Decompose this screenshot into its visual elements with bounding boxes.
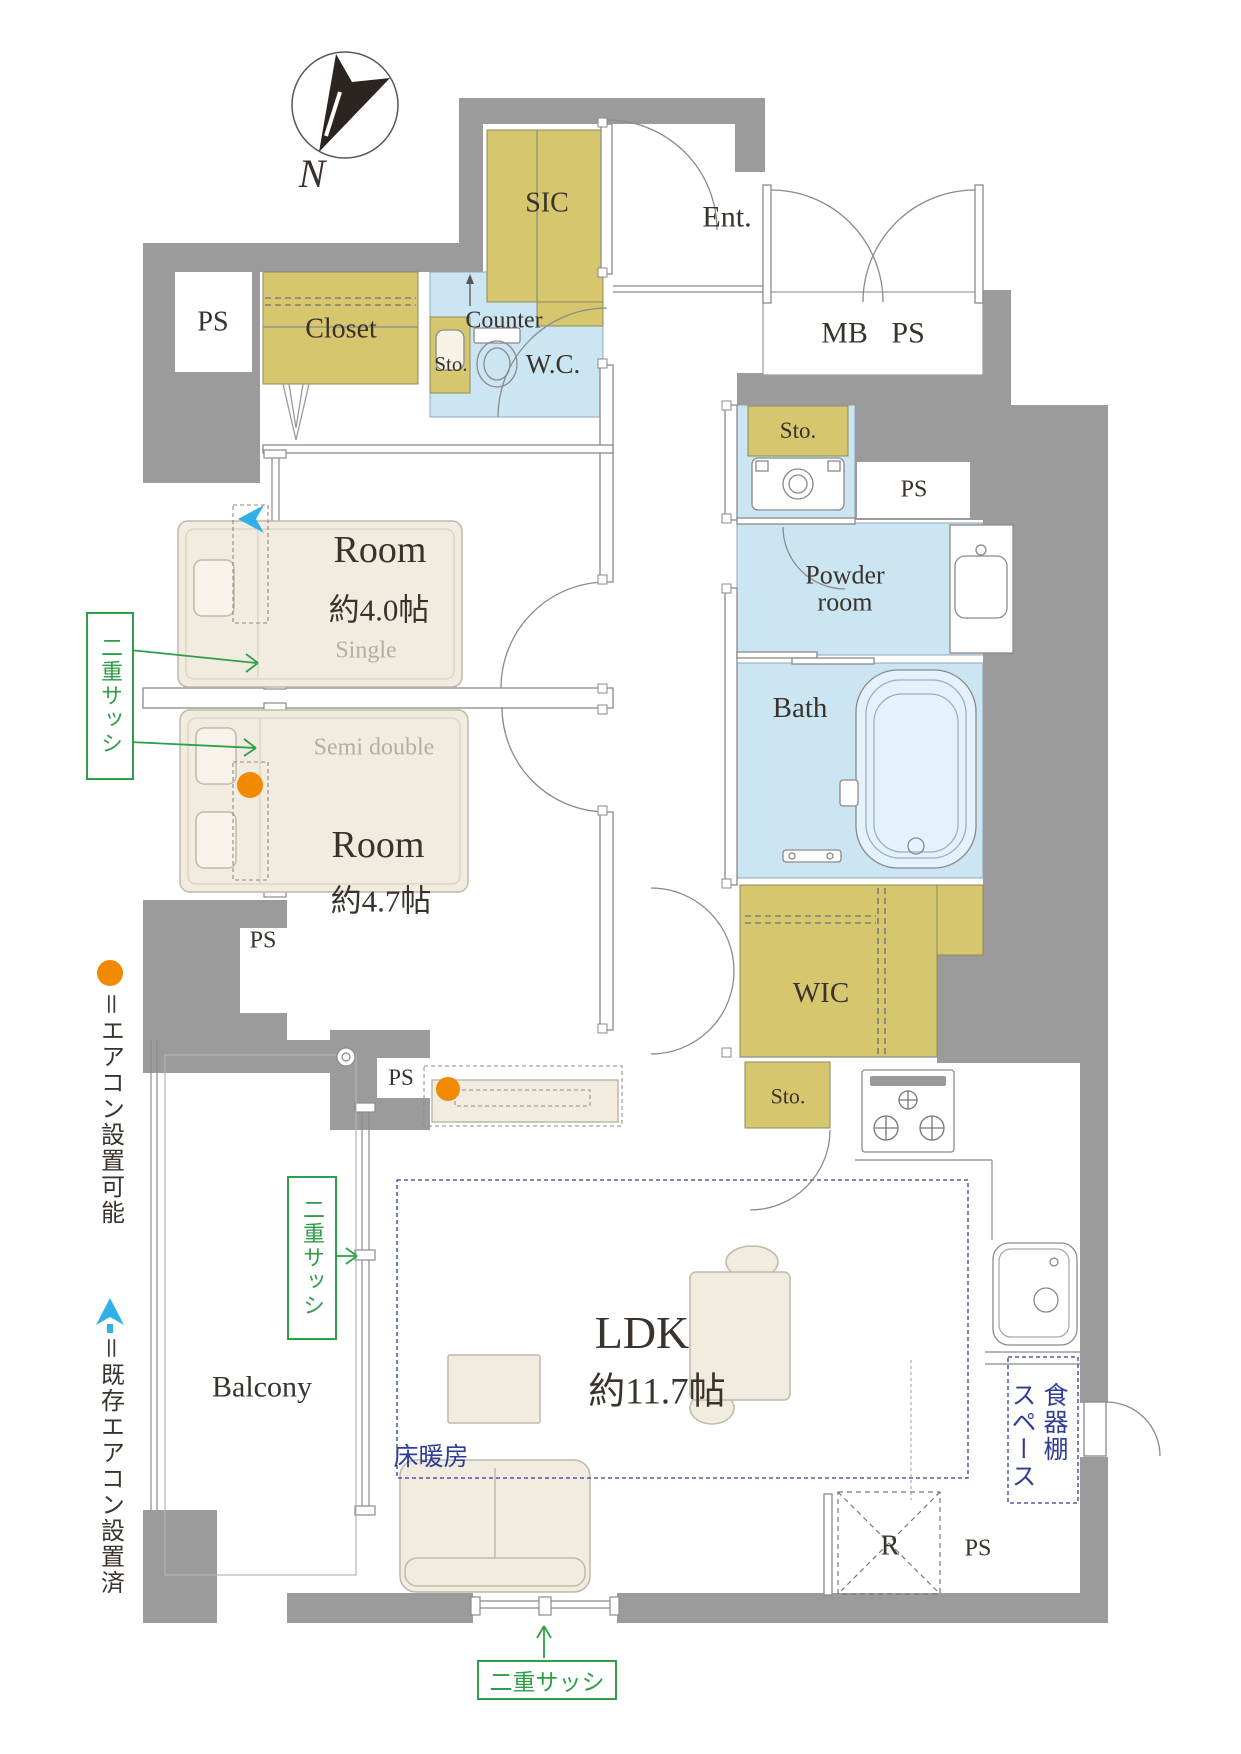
compass-label: N [299,153,326,195]
counter-label: Counter [465,308,542,333]
wic-zone [740,885,937,1057]
powder-room-label: Powder room [780,562,910,617]
fridge-label: R [881,1531,900,1560]
bath-faucet [840,780,858,806]
side-door [1106,1402,1160,1456]
ps-nw-label: PS [197,307,228,336]
room1-name: Room [334,531,427,571]
ldk-name: LDK [595,1309,690,1357]
wic-door-lower [651,971,734,1054]
ldk-size: 約11.7帖 [588,1374,725,1413]
ps-se-label: PS [965,1536,992,1561]
hanger-icon [283,384,309,440]
compass-icon [292,52,398,158]
floorplan-drawing [0,0,1241,1754]
vanity [950,525,1013,653]
kitchen-storage-door [750,1130,830,1210]
tv-board [432,1080,618,1122]
bath-label: Bath [773,693,828,723]
hall-door [607,120,717,230]
wic-door-upper [651,888,734,971]
double-sash-label-balcony: 二重サッシ [287,1176,337,1340]
hinge-blocks [598,118,731,1057]
wc-storage-label: Sto. [434,353,467,375]
legend-aircon-existing: ＝既存エアコン設置済 [93,1336,128,1596]
room2-bed-type: Semi double [314,735,435,760]
double-sash-label-left: 二重サッシ [86,612,134,780]
coffee-table [448,1355,540,1423]
wic-label: WIC [793,978,849,1008]
aircon-possible-icon [237,772,263,798]
room1-door [501,582,607,688]
cupboard-space-label: スペース [1003,1382,1039,1490]
closet-label: Closet [305,314,377,343]
aircon-possible-icon [97,960,123,986]
kitchen-storage-label: Sto. [771,1084,806,1107]
legend-aircon-possible: ＝エアコン設置可能 [93,992,128,1226]
ps-laundry-label: PS [901,477,928,502]
double-sash-label-bottom: 二重サッシ [477,1660,617,1700]
room2-door [502,707,607,812]
entrance-door-right [863,190,975,302]
room1-bed-type: Single [335,638,396,663]
room2-size: 約4.7帖 [331,886,432,919]
ps-balcony-label: PS [388,1066,414,1090]
cupboard-space-label: 食器棚 [1035,1382,1071,1463]
entrance-door-left [771,190,883,302]
room2-name: Room [332,826,425,866]
wc-label: W.C. [526,350,581,378]
room1-size: 約4.0帖 [329,595,430,628]
shower-bar [783,850,841,862]
floorplan-canvas: N SIC Ent. MB PS PS Closet Counter Sto. … [0,0,1241,1754]
ps-room2-label: PS [250,928,277,953]
balcony-label: Balcony [212,1371,312,1403]
floor-heating-label: 床暖房 [393,1445,468,1471]
sic-label: SIC [525,188,569,217]
aircon-possible-icon [436,1077,460,1101]
laundry-storage-label: Sto. [780,419,816,443]
mb-ps-label: MB PS [821,317,925,349]
entrance-label: Ent. [702,201,751,233]
